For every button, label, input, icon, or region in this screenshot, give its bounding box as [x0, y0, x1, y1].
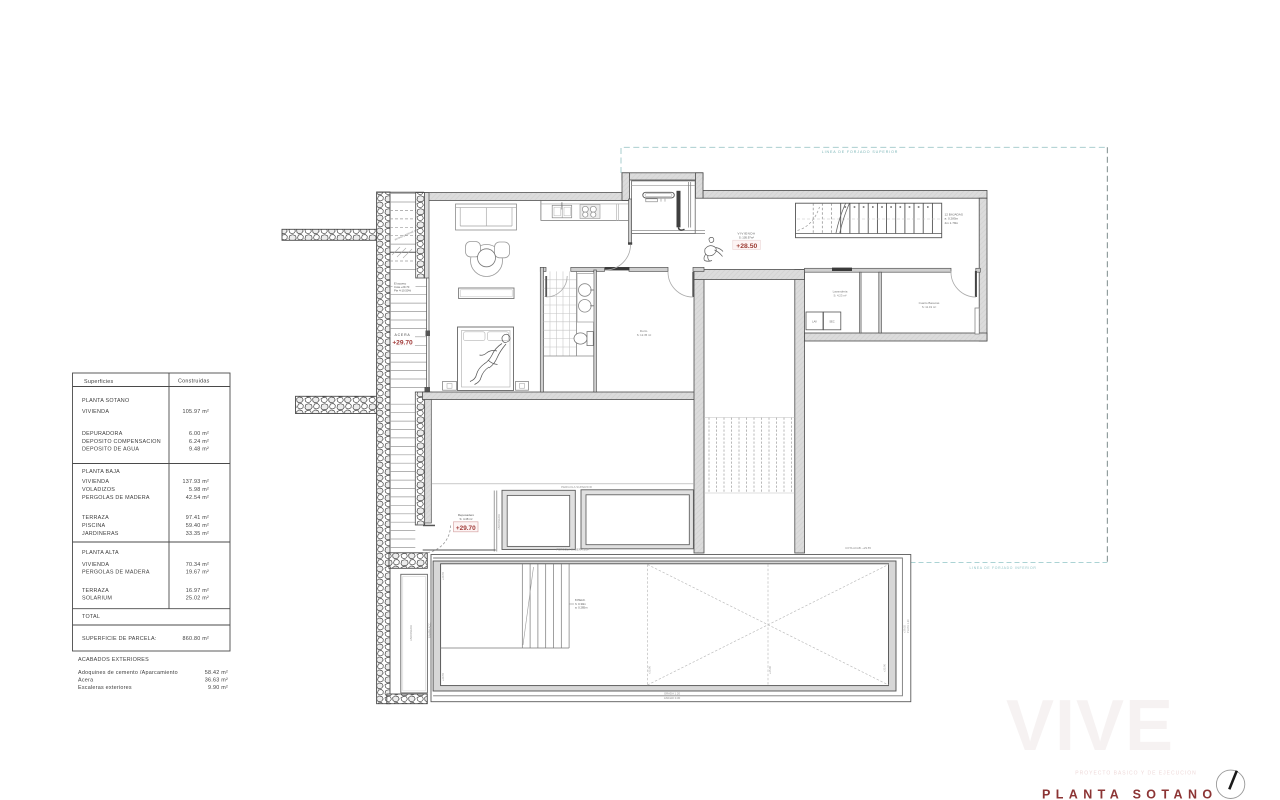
svg-text:16.97 m²: 16.97 m² [186, 588, 209, 594]
svg-text:6.24 m²: 6.24 m² [189, 439, 209, 445]
svg-text:860.80 m²: 860.80 m² [182, 636, 209, 642]
svg-text:VOLADIZOS: VOLADIZOS [82, 487, 115, 493]
svg-text:PLANTA SOTANO: PLANTA SOTANO [1042, 788, 1218, 800]
svg-text:9.90 m²: 9.90 m² [208, 685, 228, 691]
svg-text:33.35 m²: 33.35 m² [186, 531, 209, 537]
svg-text:97.41 m²: 97.41 m² [186, 515, 209, 521]
svg-text:COTA ACAB. +29.55: COTA ACAB. +29.55 [845, 546, 871, 550]
svg-text:+25.90: +25.90 [883, 663, 887, 672]
svg-text:+29.70: +29.70 [392, 340, 413, 347]
svg-text:TERRAZA: TERRAZA [82, 515, 109, 521]
svg-text:58.42 m²: 58.42 m² [205, 670, 228, 676]
svg-text:PISCINA: PISCINA [82, 523, 105, 529]
svg-text:9.48 m²: 9.48 m² [189, 447, 209, 453]
svg-text:+29.70: +29.70 [456, 525, 476, 532]
svg-text:70.34 m²: 70.34 m² [186, 562, 209, 568]
svg-text:VIVIENDA: VIVIENDA [82, 479, 109, 485]
svg-text:SOLARIUM: SOLARIUM [82, 596, 112, 602]
svg-text:42.54 m²: 42.54 m² [186, 495, 209, 501]
svg-text:Pte 4-10.50%: Pte 4-10.50% [394, 289, 411, 293]
svg-text:S: 12.35 m²: S: 12.35 m² [637, 333, 652, 337]
svg-text:SEC: SEC [829, 320, 834, 324]
svg-text:25.02 m²: 25.02 m² [186, 596, 209, 602]
svg-text:DEPURADORA: DEPURADORA [82, 431, 123, 437]
svg-text:105.97 m²: 105.97 m² [182, 409, 209, 415]
svg-text:+25.90: +25.90 [768, 665, 772, 674]
svg-text:PLANTA SOTANO: PLANTA SOTANO [82, 398, 129, 404]
svg-text:VIVIENDA: VIVIENDA [82, 409, 109, 415]
svg-text:a: 0.285m: a: 0.285m [575, 606, 588, 610]
svg-text:SUPERFICIE DE PARCELA:: SUPERFICIE DE PARCELA: [82, 636, 157, 642]
svg-text:TOTAL: TOTAL [82, 614, 100, 620]
svg-text:6.00 m²: 6.00 m² [189, 431, 209, 437]
svg-text:PROYECTO BASICO Y DE EJECUCION: PROYECTO BASICO Y DE EJECUCION [1075, 771, 1196, 777]
svg-text:137.93 m²: 137.93 m² [182, 479, 209, 485]
svg-text:S: 105.97m²: S: 105.97m² [739, 235, 754, 239]
svg-text:DEPOSITO COMPENSACION: DEPOSITO COMPENSACION [82, 439, 161, 445]
svg-text:GRADA 1.20: GRADA 1.20 [664, 692, 680, 696]
svg-text:S: 4.48 m²: S: 4.48 m² [460, 517, 473, 521]
svg-text:Construidas: Construidas [178, 379, 210, 385]
svg-text:PERGOLA MADERA SUP.: PERGOLA MADERA SUP. [557, 548, 590, 552]
svg-text:PERGOLAS DE MADERA: PERGOLAS DE MADERA [82, 570, 150, 576]
svg-text:JARDINERA: JARDINERA [409, 625, 413, 641]
svg-text:PLAYA 1.20: PLAYA 1.20 [906, 619, 910, 633]
svg-text:Adoquines de cemento /Aparcami: Adoquines de cemento /Aparcamiento [78, 670, 178, 676]
svg-text:ACABADOS EXTERIORES: ACABADOS EXTERIORES [78, 657, 149, 663]
svg-text:+29.55: +29.55 [902, 624, 906, 633]
svg-text:S: 4.23 m²: S: 4.23 m² [834, 294, 847, 298]
svg-text:TERRAZA: TERRAZA [82, 588, 109, 594]
svg-text:+29.55: +29.55 [441, 672, 445, 681]
svg-text:JARDINERAS: JARDINERAS [82, 531, 119, 537]
svg-text:LINEA DE FORJADO SUPERIOR: LINEA DE FORJADO SUPERIOR [822, 150, 899, 154]
svg-text:DEPOSITO DE AGUA: DEPOSITO DE AGUA [82, 447, 139, 453]
svg-text:Superficies: Superficies [84, 379, 113, 385]
svg-text:PLANTA BAJA: PLANTA BAJA [82, 469, 120, 475]
svg-text:+28.50: +28.50 [736, 243, 757, 250]
svg-text:VIVE: VIVE [1006, 686, 1174, 766]
svg-text:36.63 m²: 36.63 m² [205, 678, 228, 684]
svg-text:VIVIENDA: VIVIENDA [82, 562, 109, 568]
svg-text:PERGOLA SUPERIOR: PERGOLA SUPERIOR [561, 485, 593, 489]
svg-text:PLANTA ALTA: PLANTA ALTA [82, 550, 119, 556]
svg-text:+25.90: +25.90 [648, 665, 652, 674]
svg-text:Acera: Acera [78, 678, 93, 684]
svg-text:19.67 m²: 19.67 m² [186, 570, 209, 576]
svg-text:RAMPA ACC.: RAMPA ACC. [428, 622, 432, 638]
svg-text:JARDINERA: JARDINERA [497, 514, 501, 530]
svg-text:PERGOLAS DE MADERA: PERGOLAS DE MADERA [82, 495, 150, 501]
svg-text:ANCHO 0.30: ANCHO 0.30 [664, 696, 681, 700]
svg-text:+29.55: +29.55 [441, 571, 445, 580]
svg-text:5.98 m²: 5.98 m² [189, 487, 209, 493]
svg-text:4m 1.78m: 4m 1.78m [945, 221, 959, 225]
svg-text:S: 11.19 m²: S: 11.19 m² [922, 305, 936, 309]
svg-text:LAV: LAV [812, 320, 817, 324]
svg-text:Escaleras exteriores: Escaleras exteriores [78, 685, 132, 691]
svg-text:ACERA: ACERA [394, 333, 410, 337]
svg-text:LINEA DE FORJADO INFERIOR: LINEA DE FORJADO INFERIOR [969, 566, 1036, 570]
svg-text:59.40 m²: 59.40 m² [186, 523, 209, 529]
